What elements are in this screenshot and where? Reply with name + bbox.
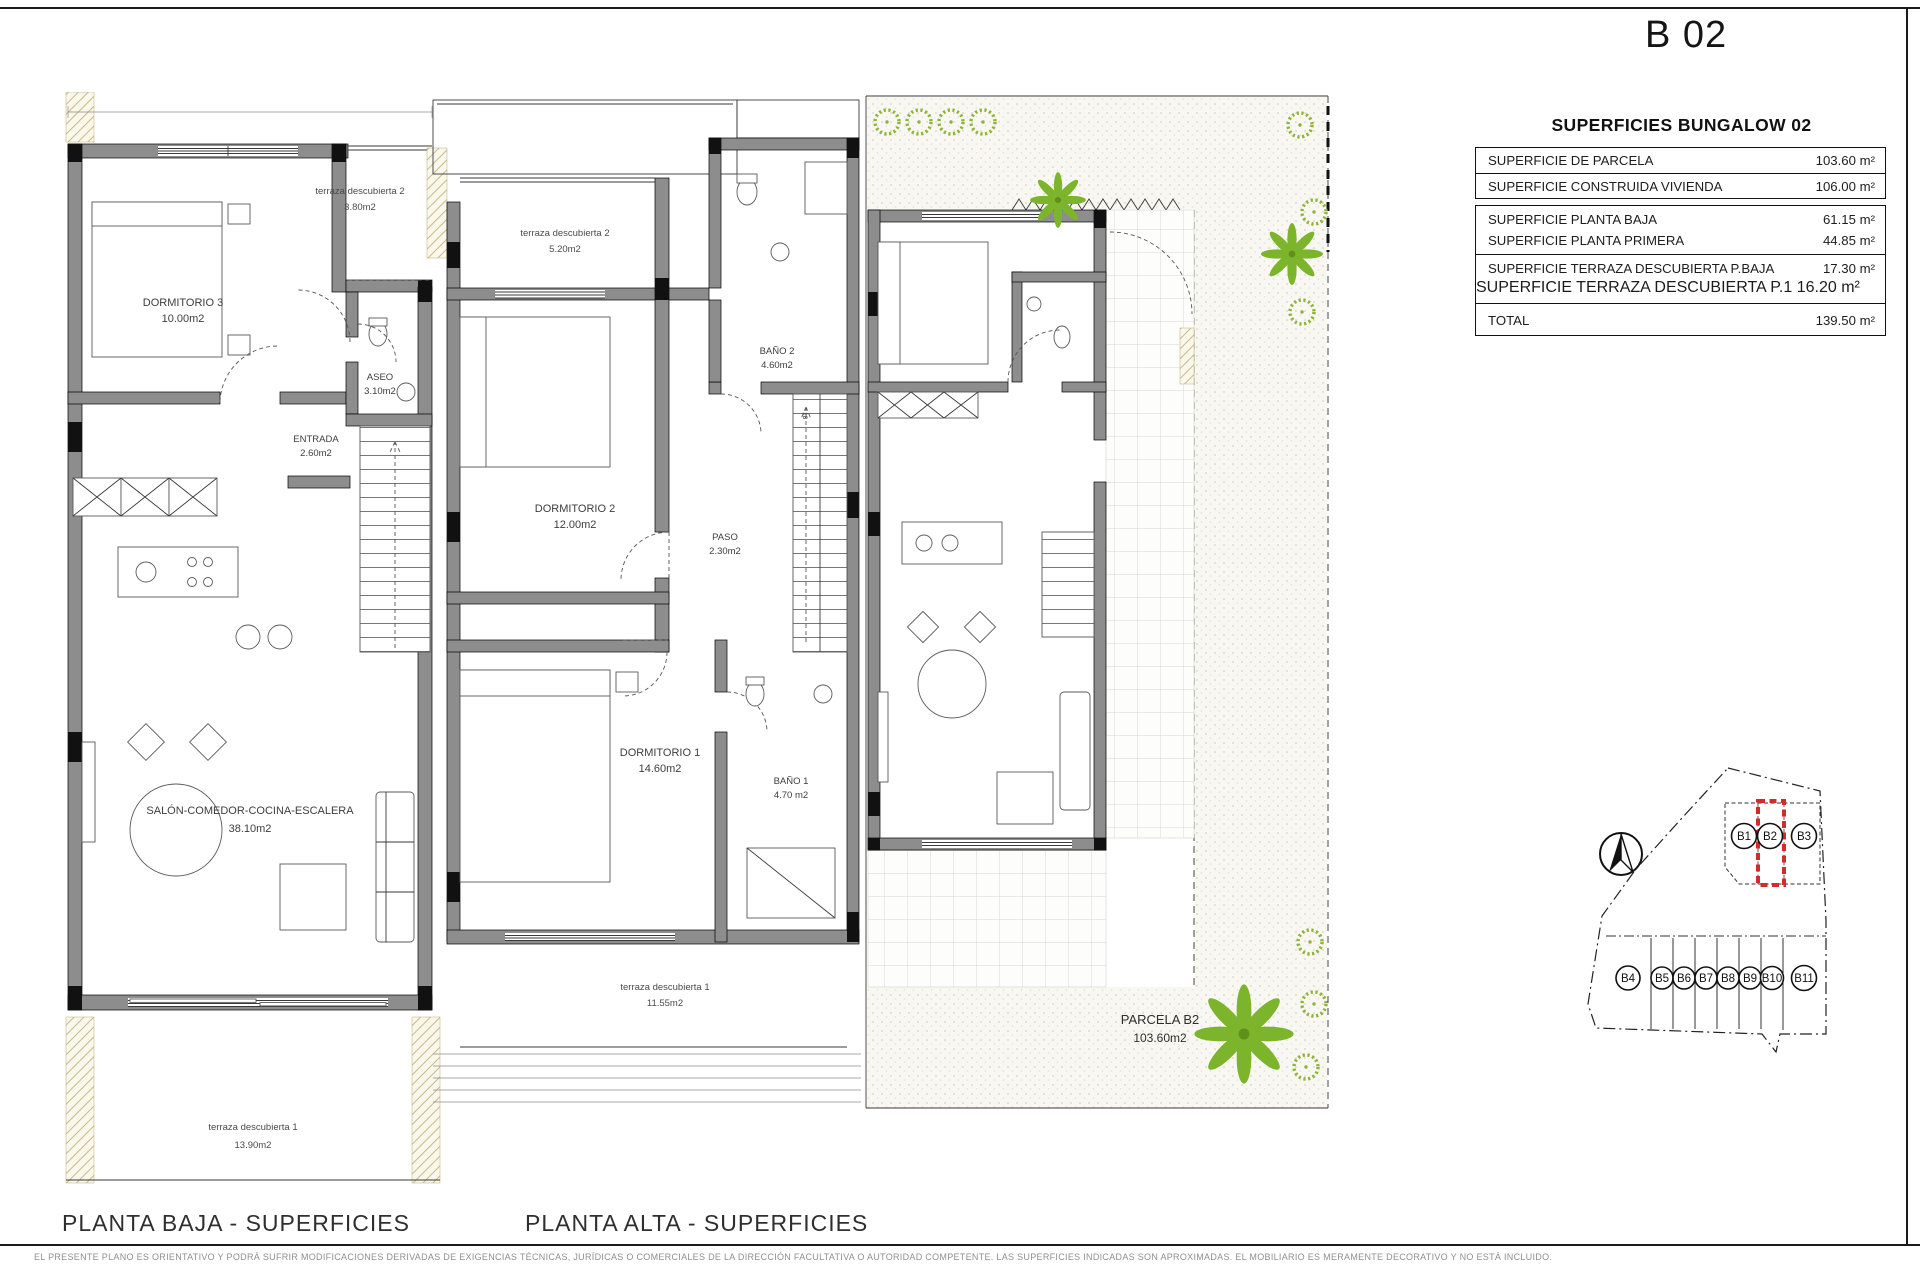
side-table-icon [997,772,1053,824]
parcela-plan: PARCELA B2 103.60m2 [862,92,1332,1122]
dining-table-icon [128,724,227,876]
north-arrow-icon [1600,833,1642,875]
unit-label-b7: B7 [1699,973,1713,985]
frame-bottom-line [0,1244,1920,1246]
room-area-terraza2: 3.80m2 [344,202,376,213]
garden-right [1194,97,1327,1108]
surfaces-table-box-2: SUPERFICIE PLANTA BAJA 61.15 m² SUPERFIC… [1475,205,1886,336]
room-area-salon: 38.10m2 [229,823,272,835]
room-area-aseo: 3.10m2 [364,386,396,397]
sliding-window [128,998,388,1007]
unit-label-b3: B3 [1797,831,1811,843]
unit-label-b11: B11 [1794,973,1814,985]
kitchen-island [118,547,238,597]
window [158,146,298,156]
unit-label-b10: B10 [1762,973,1782,985]
table-group: TOTAL 139.50 m² [1476,303,1885,336]
stair-number: 18 [801,412,808,420]
caption-planta-baja: PLANTA BAJA - SUPERFICIES [62,1210,410,1237]
toilet-icon [369,318,387,346]
room-area-bano2: 4.60m2 [761,360,793,371]
room-area-terraza1: 11.55m2 [647,998,683,1009]
room-label-paso: PASO [712,532,738,543]
row-label: SUPERFICIE PLANTA PRIMERA [1488,233,1684,248]
row-label: SUPERFICIE DE PARCELA [1488,153,1653,168]
bed-icon [92,202,250,357]
terrace-tiles [868,850,1106,987]
parcela-area: 103.60m2 [1133,1031,1187,1045]
room-area-dormitorio1: 14.60m2 [639,763,682,775]
caption-planta-alta: PLANTA ALTA - SUPERFICIES [525,1210,868,1237]
plan-sheet: DORMITORIO 3 10.00m2 terraza descubierta… [0,0,1920,1280]
site-boundary [1588,768,1826,1052]
stool-icon [268,625,292,649]
row-value: 103.60 m² [1816,153,1875,168]
row-label: SUPERFICIE TERRAZA DESCUBIERTA P.BAJA [1488,261,1774,276]
parcela-label: PARCELA B2 [1121,1012,1200,1027]
kitchen-cabinets [73,478,217,516]
surfaces-table-title: SUPERFICIES BUNGALOW 02 [1475,115,1888,136]
planta-alta-plan: 18 terraza descubierta 2 5.20m2 DORMITOR… [425,92,870,1197]
room-label-terraza1: terraza descubierta 1 [208,1122,297,1133]
room-label-dormitorio1: DORMITORIO 1 [620,747,700,759]
row-label: SUPERFICIE CONSTRUIDA VIVIENDA [1488,179,1722,194]
stairs [360,426,430,652]
walkway-tiles [1106,210,1194,838]
stairs: 18 [793,394,847,652]
disclaimer-text: EL PRESENTE PLANO ES ORIENTATIVO Y PODRÁ… [34,1252,1552,1262]
room-label-entrada: ENTRADA [293,434,339,445]
table-row: SUPERFICIE CONSTRUIDA VIVIENDA 106.00 m² [1476,174,1885,199]
table-row: SUPERFICIE PLANTA BAJA 61.15 m² [1476,209,1885,230]
room-area-entrada: 2.60m2 [300,448,332,459]
room-label-terraza1: terraza descubierta 1 [620,982,709,993]
sofa-icon [1060,692,1090,810]
party-wall-hatch [66,92,94,142]
roof-outline [433,100,859,174]
unit-label-b4: B4 [1621,973,1636,985]
wardrobe-icon [878,392,978,418]
row-value: 16.20 m² [1797,279,1860,296]
room-label-aseo: ASEO [367,372,393,383]
dining-table-icon [907,611,995,718]
table-row: TOTAL 139.50 m² [1476,304,1885,336]
room-label-dormitorio3: DORMITORIO 3 [143,297,223,309]
bed-icon [878,242,988,364]
room-area-bano1: 4.70 m2 [774,790,808,801]
sofa-icon [376,792,414,942]
tv-unit-icon [82,742,95,842]
party-wall-hatch [427,148,447,258]
unit-label-b6: B6 [1677,973,1691,985]
room-label-dormitorio2: DORMITORIO 2 [535,503,615,515]
room-area-terraza2: 5.20m2 [549,244,581,255]
site-plan: B1 B2 B3 B4 B5 B6 B7 B8 B9 B10 B11 [1558,766,1920,1084]
table-group: SUPERFICIE PLANTA BAJA 61.15 m² SUPERFIC… [1476,206,1885,254]
garden-bottom [867,987,1194,1108]
unit-label-b5: B5 [1655,973,1669,985]
sink-icon [397,383,415,401]
tv-unit-icon [878,692,888,782]
row-label: SUPERFICIE PLANTA BAJA [1488,212,1657,227]
room-label-terraza2: terraza descubierta 2 [520,228,609,239]
row-value: 139.50 m² [1816,313,1875,328]
shower-icon [747,848,835,918]
table-row: SUPERFICIE PLANTA PRIMERA 44.85 m² [1476,230,1885,251]
planta-baja-plan: DORMITORIO 3 10.00m2 terraza descubierta… [58,92,448,1197]
shower-icon [805,162,847,214]
row-label: TOTAL [1488,313,1529,328]
stool-icon [236,625,260,649]
sink-icon [1027,297,1041,311]
toilet-icon [746,677,764,706]
frame-top-line [0,7,1920,9]
row-label: SUPERFICIE TERRAZA DESCUBIERTA P.1 [1476,279,1792,296]
row-value: 44.85 m² [1823,233,1875,248]
toilet-icon [737,174,757,205]
row-value: 61.15 m² [1823,212,1875,227]
toilet-icon [1054,326,1070,348]
unit-label-b8: B8 [1721,973,1735,985]
bed-icon [460,670,638,882]
stairs [1042,532,1094,637]
surfaces-table-box-1: SUPERFICIE DE PARCELA 103.60 m² SUPERFIC… [1475,147,1886,199]
room-area-paso: 2.30m2 [709,546,741,557]
table-group: SUPERFICIE TERRAZA DESCUBIERTA P.BAJA 17… [1476,254,1885,303]
room-label-bano1: BAÑO 1 [774,776,809,787]
room-label-salon: SALÓN-COMEDOR-COCINA-ESCALERA [146,804,354,817]
table-row: SUPERFICIE DE PARCELA 103.60 m² [1476,148,1885,174]
unit-label-b9: B9 [1743,973,1757,985]
row-value: 106.00 m² [1816,179,1875,194]
unit-label-b2: B2 [1763,831,1777,843]
kitchen-island [902,522,1002,564]
room-area-terraza1: 13.90m2 [235,1140,272,1151]
table-row: SUPERFICIE TERRAZA DESCUBIERTA P.1 16.20… [1476,279,1885,300]
unit-label-b1: B1 [1737,831,1751,843]
room-area-dormitorio2: 12.00m2 [554,519,597,531]
side-table-icon [280,864,346,930]
sink-icon [814,685,832,703]
room-label-bano2: BAÑO 2 [760,346,795,357]
room-label-terraza2: terraza descubierta 2 [315,186,404,197]
bed-icon [460,317,610,467]
row-value: 17.30 m² [1823,261,1875,276]
room-area-dormitorio3: 10.00m2 [162,313,205,325]
table-row: SUPERFICIE TERRAZA DESCUBIERTA P.BAJA 17… [1476,258,1885,279]
sink-icon [771,243,789,261]
plan-code-title: B 02 [1645,14,1795,57]
